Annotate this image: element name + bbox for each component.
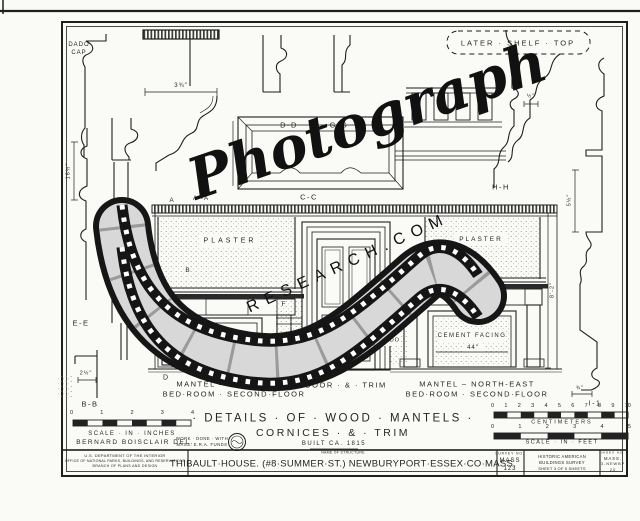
habs-sheet: DADO CAP LATER · SHELF · TOP 3¾″ D-D G-G… bbox=[0, 0, 640, 521]
